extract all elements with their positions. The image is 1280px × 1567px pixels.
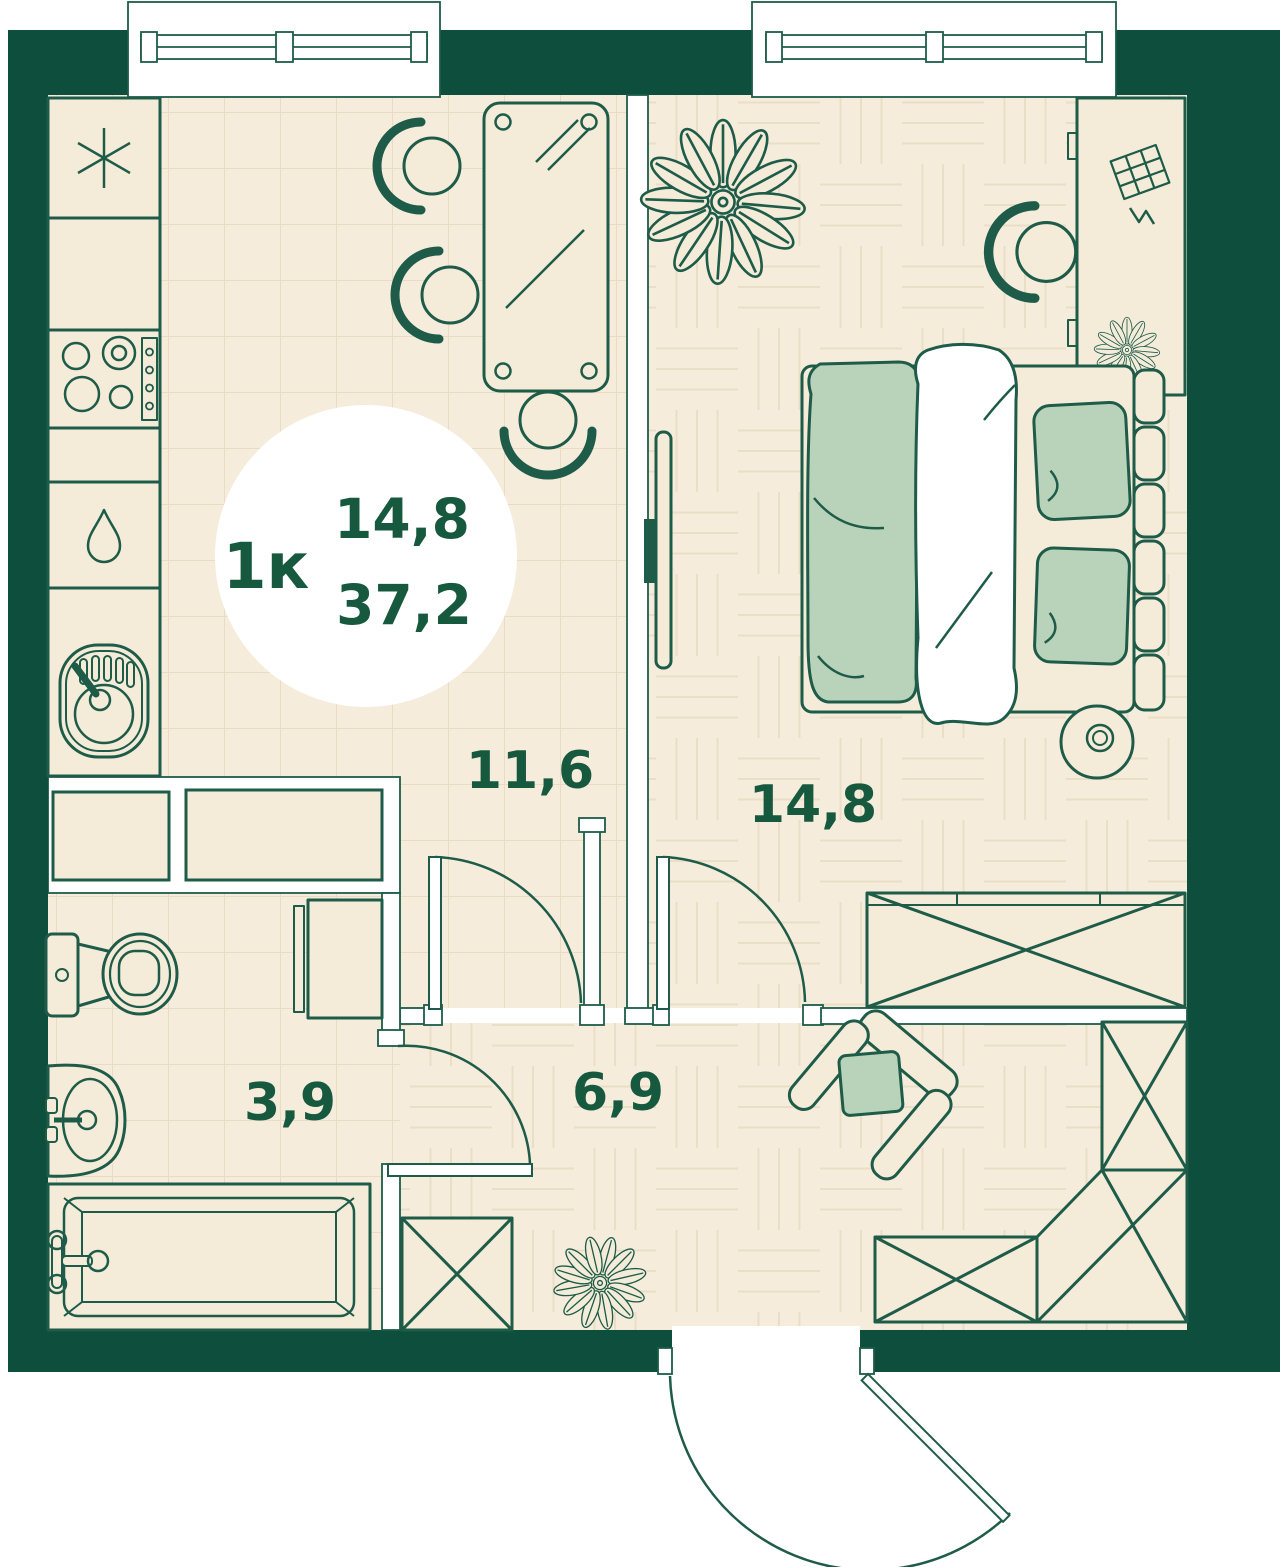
divider-cabinet-right [186,790,382,880]
wall-fin-kitchen [584,826,600,1012]
blanket [808,362,918,702]
wardrobe-bedroom [867,893,1185,1007]
wall-left [8,30,48,1372]
cabinet-hall [402,1218,512,1330]
kitchen-area-label: 11,6 [466,741,594,801]
hallway-area-label: 6,9 [572,1063,664,1123]
floor-plan: 1к 14,8 37,2 11,6 14,8 3,9 6,9 [0,0,1280,1567]
wall-bottom [8,1330,1280,1372]
bedroom-area-label: 14,8 [749,775,877,835]
bathroom-area-label: 3,9 [244,1073,336,1133]
pouf [1061,706,1133,778]
headboard-tuft [1134,370,1164,423]
kitchen-counter-1 [48,218,160,330]
entrance-jamb-left [658,1348,672,1374]
window-right [752,2,1116,97]
bed [802,344,1164,724]
area-badge: 1к 14,8 37,2 [215,405,517,707]
divider-cabinet-left [53,792,169,880]
bathtub [48,1184,370,1330]
tv [656,432,671,668]
armchair-cushion [838,1051,903,1116]
dishwasher [48,482,160,588]
pillow-2 [1034,547,1130,664]
window-left [128,2,440,97]
entrance-opening [672,1326,860,1376]
washing-machine [294,900,382,1018]
entrance-jamb-right [860,1348,874,1374]
kitchen-bath-divider-wall [48,777,400,893]
pillow-1 [1033,402,1131,521]
wall-bathroom-hall-upper [382,893,400,1034]
door-entrance [670,1374,1010,1567]
washbasin [46,1065,125,1176]
wall-right [1187,30,1280,1372]
floor-plan-drawing: 1к 14,8 37,2 11,6 14,8 3,9 6,9 [0,0,1280,1567]
dining-table [484,103,608,391]
kitchen-sink [48,588,160,776]
desk [1068,98,1185,395]
kitchen-counter-2 [48,428,160,482]
wall-bathroom-hall-lower [382,1164,400,1330]
total-area-label: 37,2 [336,573,472,637]
stove [48,330,160,428]
unit-type-label: 1к [223,530,310,603]
living-area-label: 14,8 [334,487,470,551]
